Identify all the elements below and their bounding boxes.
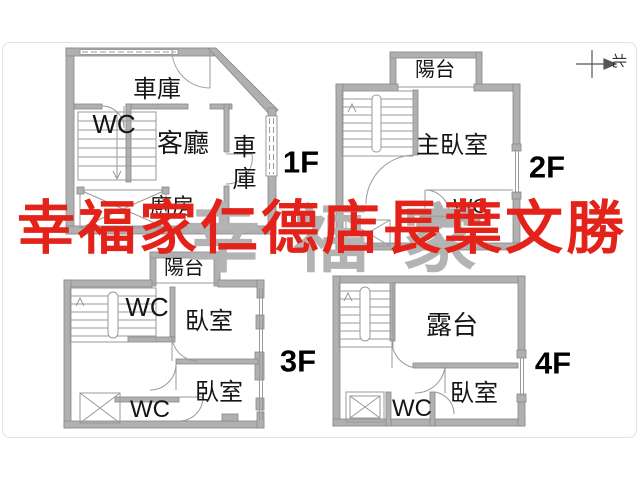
room-label-wc-upper-3f: WC	[125, 294, 168, 320]
room-label-living-room: 客廳	[157, 130, 209, 156]
room-label-balcony-2f: 陽台	[415, 60, 455, 80]
room-label-garage-top: 車庫	[133, 78, 181, 102]
room-label-wc-lower-3f: WC	[130, 398, 170, 422]
room-label-bedroom-4f: 臥室	[450, 382, 498, 406]
room-label-wc-1f: WC	[92, 111, 135, 137]
floor-label-1f: 1F	[283, 147, 319, 178]
room-label-wc-4f: WC	[392, 397, 432, 421]
floor-label-2f: 2F	[529, 152, 565, 183]
north-label: 北	[609, 53, 630, 68]
floor-plan-image: 車庫 WC 客廳 車庫 廚房 1F 陽台 主臥室 WC 2F 陽台 WC 臥室 …	[0, 0, 640, 480]
floor-label-4f: 4F	[535, 348, 571, 379]
room-label-bedroom-lower-3f: 臥室	[195, 381, 243, 405]
room-label-garage-side: 車庫	[229, 134, 253, 198]
room-label-master-bedroom: 主臥室	[416, 134, 488, 158]
floor-label-3f: 3F	[280, 346, 316, 377]
room-label-terrace: 露台	[426, 312, 478, 338]
room-label-bedroom-upper-3f: 臥室	[185, 310, 233, 334]
watermark-text: 幸福家仁德店長葉文勝	[10, 197, 634, 262]
